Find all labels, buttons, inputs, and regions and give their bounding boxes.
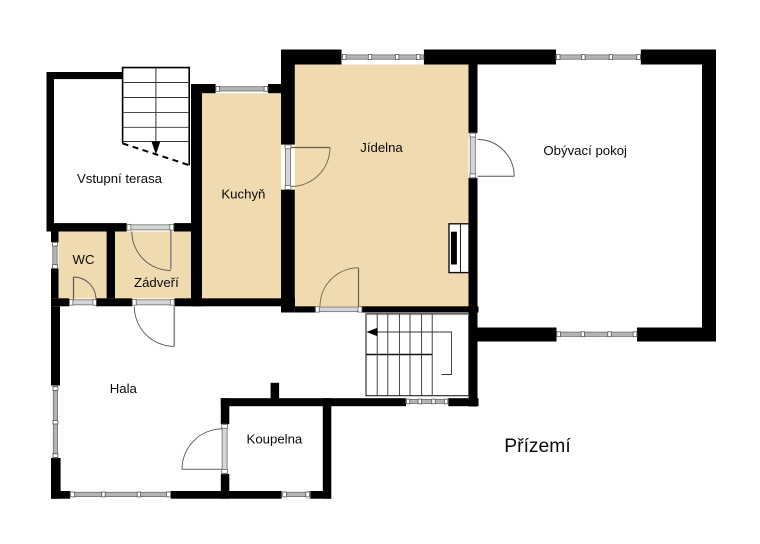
svg-text:WC: WC (73, 252, 95, 267)
svg-text:Obývací pokoj: Obývací pokoj (543, 143, 627, 158)
svg-text:Kuchyň: Kuchyň (221, 187, 265, 202)
svg-text:Zádveří: Zádveří (134, 275, 179, 290)
svg-text:Vstupní terasa: Vstupní terasa (77, 171, 163, 186)
svg-text:Hala: Hala (110, 381, 138, 396)
svg-text:Jídelna: Jídelna (360, 140, 403, 155)
svg-text:Koupelna: Koupelna (247, 432, 303, 447)
svg-text:Přízemí: Přízemí (504, 436, 571, 457)
